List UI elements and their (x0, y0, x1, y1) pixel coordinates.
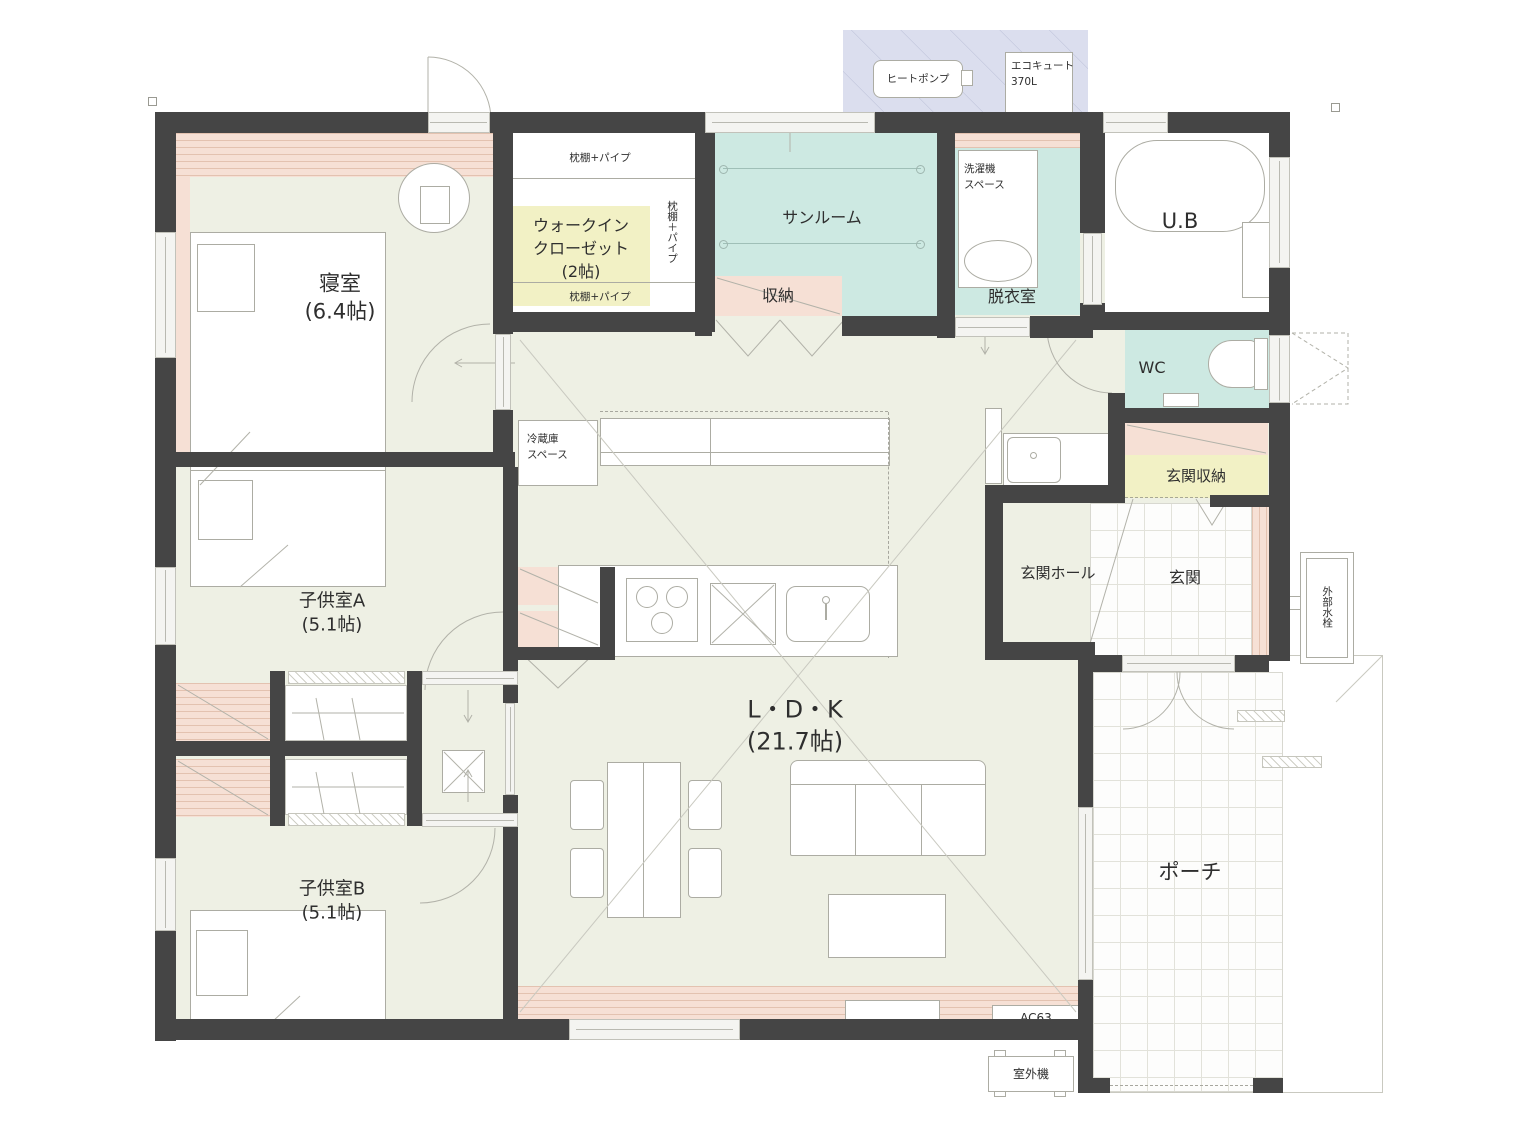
sofa-seat-divider (855, 784, 856, 856)
bed-pillow (196, 930, 248, 996)
window (705, 112, 875, 133)
toilet-shelf (1163, 393, 1199, 407)
bed-pillow (197, 244, 255, 312)
window (569, 1019, 740, 1040)
washbasin-bowl (1007, 437, 1061, 483)
eaves-line-right (1382, 655, 1383, 1093)
sink-faucet-stem (825, 604, 827, 620)
wall (493, 312, 715, 332)
plan-element (1292, 333, 1348, 404)
heat-pump-label: ヒートポンプ (887, 72, 950, 86)
door-opening (428, 112, 490, 133)
wall (1269, 112, 1290, 157)
eaves-line-bottom (1093, 1092, 1383, 1093)
sofa-seat-divider (921, 784, 922, 856)
wall (1269, 268, 1290, 335)
drying-pole (723, 243, 921, 244)
window (1103, 112, 1168, 133)
kitchen-grill-box (710, 583, 776, 645)
wall (1108, 393, 1125, 503)
closet-a-interior (285, 685, 407, 741)
stove-burner (636, 586, 658, 608)
folding-door (1083, 233, 1102, 305)
room-label-entrance: 玄関 (1169, 567, 1201, 589)
room-label-entrance-storage: 玄関収納 (1166, 466, 1226, 486)
closet-b-block (176, 759, 270, 817)
kitchen-back-counter (600, 418, 890, 466)
wall (493, 133, 513, 334)
wall (518, 647, 615, 660)
wall (490, 112, 705, 133)
sliding-door (422, 813, 518, 827)
laundry-label-line1: 洗濯機 (964, 162, 1005, 178)
kitchen-sink (786, 586, 870, 642)
porch-step (1262, 756, 1322, 768)
room-label-storage: 収納 (762, 285, 794, 307)
ldk-size: (21.7帖) (747, 726, 843, 758)
room-label-bedroom: 寝室 (6.4帖) (305, 270, 376, 327)
armchair-seat (420, 186, 450, 224)
window (155, 567, 176, 645)
stove-burner (651, 612, 673, 634)
drying-pole (723, 168, 921, 169)
laundry-space-label: 洗濯機 スペース (964, 162, 1005, 194)
bedroom-size: (6.4帖) (305, 298, 376, 326)
closet-a-block (176, 683, 270, 741)
wall (503, 795, 518, 1040)
heat-pump-valve (961, 70, 973, 86)
ecocute-label: エコキュート 370L (1011, 58, 1074, 91)
room-label-porch: ポーチ (1159, 858, 1222, 886)
room-label-wic: ウォークイン クローゼット (2帖) (533, 214, 629, 284)
wall (155, 741, 422, 756)
wall (1093, 655, 1122, 672)
sofa (790, 760, 986, 856)
pole-end (916, 240, 925, 249)
wall (937, 133, 955, 316)
wall (985, 503, 1003, 660)
fridge-label-line1: 冷蔵庫 (527, 432, 568, 448)
wall (1078, 655, 1093, 807)
wic-name-line2: クローゼット (533, 237, 629, 260)
dining-chair (688, 848, 722, 898)
wall (937, 316, 955, 338)
wall (503, 467, 518, 703)
coffee-table (828, 894, 946, 958)
plan-element (428, 57, 491, 120)
wall (1235, 655, 1269, 672)
wall (695, 316, 712, 336)
porch-edge-dashed (1110, 1085, 1253, 1086)
bed-pillow (198, 480, 253, 540)
room-label-dressing: 脱衣室 (988, 286, 1036, 308)
dining-chair (570, 848, 604, 898)
wic-shelf-bottom-label: 枕棚+パイプ (569, 290, 630, 304)
wall (1269, 403, 1290, 661)
wall (1125, 408, 1270, 423)
wic-name-line1: ウォークイン (533, 214, 629, 237)
kids-b-size: (5.1帖) (299, 902, 365, 926)
room-label-ldk: L・D・K (21.7帖) (747, 694, 843, 759)
wall (1078, 980, 1093, 1093)
pole-end (719, 165, 728, 174)
wic-size: (2帖) (533, 261, 629, 284)
entrance-side-band (1252, 503, 1269, 660)
sliding-door (505, 703, 515, 795)
fridge-space-label: 冷蔵庫 スペース (527, 432, 568, 464)
closet-b-interior (285, 759, 407, 815)
window (155, 858, 176, 931)
pole-end (916, 165, 925, 174)
closet-hatch (288, 671, 405, 684)
outdoor-faucet-label: 外部水栓 (1320, 586, 1334, 628)
kids-b-name: 子供室B (299, 878, 365, 902)
pole-end (719, 240, 728, 249)
window (1269, 335, 1290, 403)
wic-shelf-top-label: 枕棚+パイプ (569, 151, 630, 165)
kitchen-hood-dashed (600, 411, 888, 412)
wc-bay-window-dashed (1292, 333, 1348, 404)
sink-faucet (822, 596, 830, 604)
stove-burner (666, 586, 688, 608)
laundry-label-line2: スペース (964, 178, 1005, 194)
wall (155, 452, 515, 467)
sliding-door (422, 671, 518, 685)
wall (875, 112, 1103, 133)
toilet-bowl (1208, 340, 1258, 388)
wall (1078, 1078, 1110, 1093)
toilet-tank (1254, 338, 1268, 390)
kids-a-size: (5.1帖) (299, 614, 365, 638)
dressing-window-band (955, 133, 1080, 148)
washing-machine-drum (964, 240, 1032, 282)
wall (740, 1019, 1093, 1040)
wall (695, 133, 715, 332)
corridor-box (442, 750, 485, 793)
wall (1253, 1078, 1283, 1093)
bedroom-name: 寝室 (305, 270, 376, 298)
bedroom-wall-band (176, 177, 190, 452)
dining-chair (688, 780, 722, 830)
counter-divider (710, 418, 711, 466)
wic-shelf-line (513, 178, 695, 179)
sliding-door (495, 334, 511, 410)
window (155, 232, 176, 358)
wall (1080, 133, 1105, 233)
wall (985, 485, 1110, 503)
survey-tick (1331, 103, 1340, 112)
wall (1093, 312, 1270, 330)
ecocute-label-line1: エコキュート (1011, 58, 1074, 74)
room-label-kids-a: 子供室A (5.1帖) (299, 590, 365, 639)
room-label-wc: WC (1139, 357, 1166, 379)
kids-a-name: 子供室A (299, 590, 365, 614)
wall (1210, 495, 1269, 507)
room-label-bath: U.B (1162, 207, 1198, 235)
bedroom-window-band (176, 133, 513, 177)
washbasin-cabinet (985, 408, 1002, 484)
sliding-door (955, 317, 1030, 337)
dining-table-leaf-line (643, 762, 644, 918)
closet-hatch (288, 813, 405, 826)
outdoor-unit-label: 室外機 (1013, 1066, 1049, 1082)
floor-plan: ヒートポンプ エコキュート 370L 冷蔵庫 スペース (0, 0, 1516, 1138)
wall (155, 112, 176, 232)
window (1269, 157, 1290, 268)
porch-step (1237, 710, 1285, 722)
counter-shelf-line (600, 452, 890, 453)
survey-tick (148, 97, 157, 106)
ecocute-label-line2: 370L (1011, 74, 1074, 90)
window (1078, 807, 1093, 980)
entrance-storage-counter (1125, 423, 1268, 455)
bath-counter (1242, 222, 1270, 298)
room-label-kids-b: 子供室B (5.1帖) (299, 878, 365, 927)
dining-chair (570, 780, 604, 830)
ldk-name: L・D・K (747, 694, 843, 726)
dining-table (607, 762, 681, 918)
wic-shelf-side-label: 枕棚＋パイプ (665, 201, 679, 264)
sofa-back-line (790, 784, 986, 785)
room-label-sunroom: サンルーム (782, 207, 862, 229)
room-label-entrance-hall: 玄関ホール (1020, 563, 1095, 583)
fridge-label-line2: スペース (527, 448, 568, 464)
wall (155, 112, 428, 133)
plan-element (1292, 333, 1348, 404)
entrance-door-opening (1122, 655, 1235, 672)
washbasin-faucet (1030, 452, 1037, 459)
